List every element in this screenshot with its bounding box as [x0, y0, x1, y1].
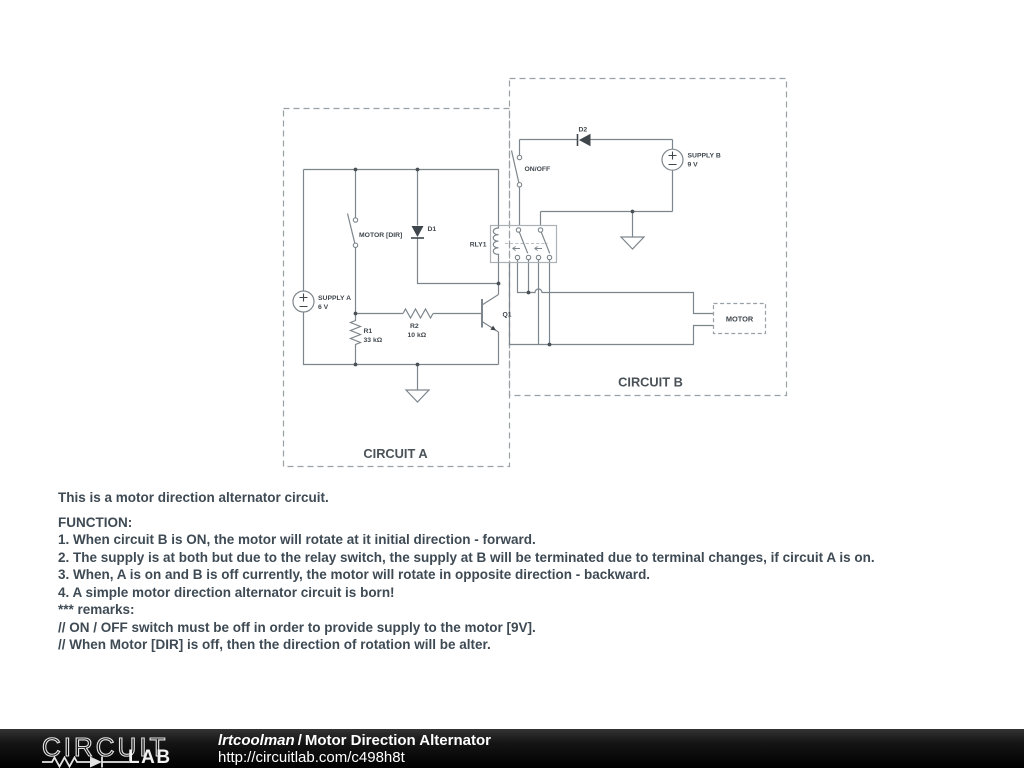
circuitlab-logo-circuit-icon [42, 756, 130, 768]
wire-relay-to-motor-top [518, 260, 714, 314]
supply-b-name: SUPPLY B [688, 153, 721, 160]
motor-label: MOTOR [726, 315, 754, 324]
r1-value: 33 kΩ [364, 337, 383, 344]
d1-label: D1 [428, 226, 437, 233]
resistor-r2 [356, 309, 482, 318]
footer-text: lrtcoolman/Motor Direction Alternator ht… [218, 732, 491, 766]
relay-contact1-blade [519, 232, 527, 253]
resistor-r1 [351, 314, 361, 365]
description-line: 4. A simple motor direction alternator c… [58, 584, 988, 602]
diode-d2-icon [579, 134, 591, 146]
transistor-q1-leads [482, 295, 499, 365]
description-intro: This is a motor direction alternator cir… [58, 489, 988, 507]
ground-b-symbol [621, 237, 644, 249]
diode-d1-icon [412, 226, 424, 237]
circuit-a-box [284, 109, 510, 467]
wire-relay-to-motor-bottom [510, 263, 714, 345]
wire-top-a [304, 170, 499, 226]
circuit-schematic: MOTOR [DIR] D1 SUPPLY A 6 V R1 33 kΩ R2 … [0, 0, 1024, 505]
supply-a-name: SUPPLY A [318, 295, 351, 302]
relay-coil-icon [493, 226, 498, 263]
description-gap [58, 507, 988, 514]
schematic-svg: MOTOR [DIR] D1 SUPPLY A 6 V R1 33 kΩ R2 … [0, 0, 1024, 500]
description-line: 1. When circuit B is ON, the motor will … [58, 531, 988, 549]
relay-contact2-blade [541, 232, 549, 253]
component-labels: MOTOR [DIR] D1 SUPPLY A 6 V R1 33 kΩ R2 … [318, 127, 754, 345]
description-line: // When Motor [DIR] is off, then the dir… [58, 636, 988, 654]
description-line: // ON / OFF switch must be off in order … [58, 619, 988, 637]
supply-a-value: 6 V [318, 304, 329, 311]
description-block: This is a motor direction alternator cir… [58, 489, 988, 654]
wire-bottom-a [304, 312, 499, 365]
footer-author: lrtcoolman [218, 732, 295, 749]
switch-onoff-terminal-bottom [517, 183, 521, 187]
switch-onoff-blade [512, 151, 519, 183]
d2-label: D2 [579, 127, 588, 134]
supply-b-value: 9 V [688, 162, 699, 169]
q1-label: Q1 [503, 312, 512, 319]
footer-title: Motor Direction Alternator [305, 732, 491, 749]
junction-dots [354, 168, 635, 367]
switch-motor-dir-terminal-bottom [353, 243, 357, 247]
circuitlab-logo-lab: LAB [128, 747, 172, 769]
motor-dir-switch-label: MOTOR [DIR] [359, 232, 402, 239]
description-line: *** remarks: [58, 601, 988, 619]
relay-arrow-1 [513, 247, 521, 251]
r2-value: 10 kΩ [408, 332, 427, 339]
rly1-label: RLY1 [470, 242, 487, 249]
onoff-switch-label: ON/OFF [525, 166, 551, 173]
footer-title-line: lrtcoolman/Motor Direction Alternator [218, 732, 491, 749]
switch-motor-dir-terminal-top [353, 218, 357, 222]
description-line: 2. The supply is at both but due to the … [58, 549, 988, 567]
relay-arrow-2 [535, 247, 543, 251]
footer-url: http://circuitlab.com/c498h8t [218, 749, 491, 766]
circuit-a-wires [304, 170, 499, 403]
circuit-b-title: CIRCUIT B [618, 375, 683, 390]
wire-supply-b-return [541, 170, 673, 225]
r1-name: R1 [364, 328, 373, 335]
circuit-a-title: CIRCUIT A [363, 446, 427, 461]
description-line: 3. When, A is on and B is off currently,… [58, 566, 988, 584]
circuitlab-logo: CIRCUIT LAB [40, 730, 190, 768]
footer-separator: / [298, 732, 302, 749]
circuitlab-footer-bar: CIRCUIT LAB lrtcoolman/Motor Direction A… [0, 729, 1024, 768]
circuit-b-box [510, 79, 787, 396]
switch-onoff-terminal-top [517, 155, 521, 159]
description-line: FUNCTION: [58, 514, 988, 532]
ground-a-symbol [406, 390, 429, 402]
r2-name: R2 [410, 323, 419, 330]
relay-contacts [513, 232, 550, 253]
